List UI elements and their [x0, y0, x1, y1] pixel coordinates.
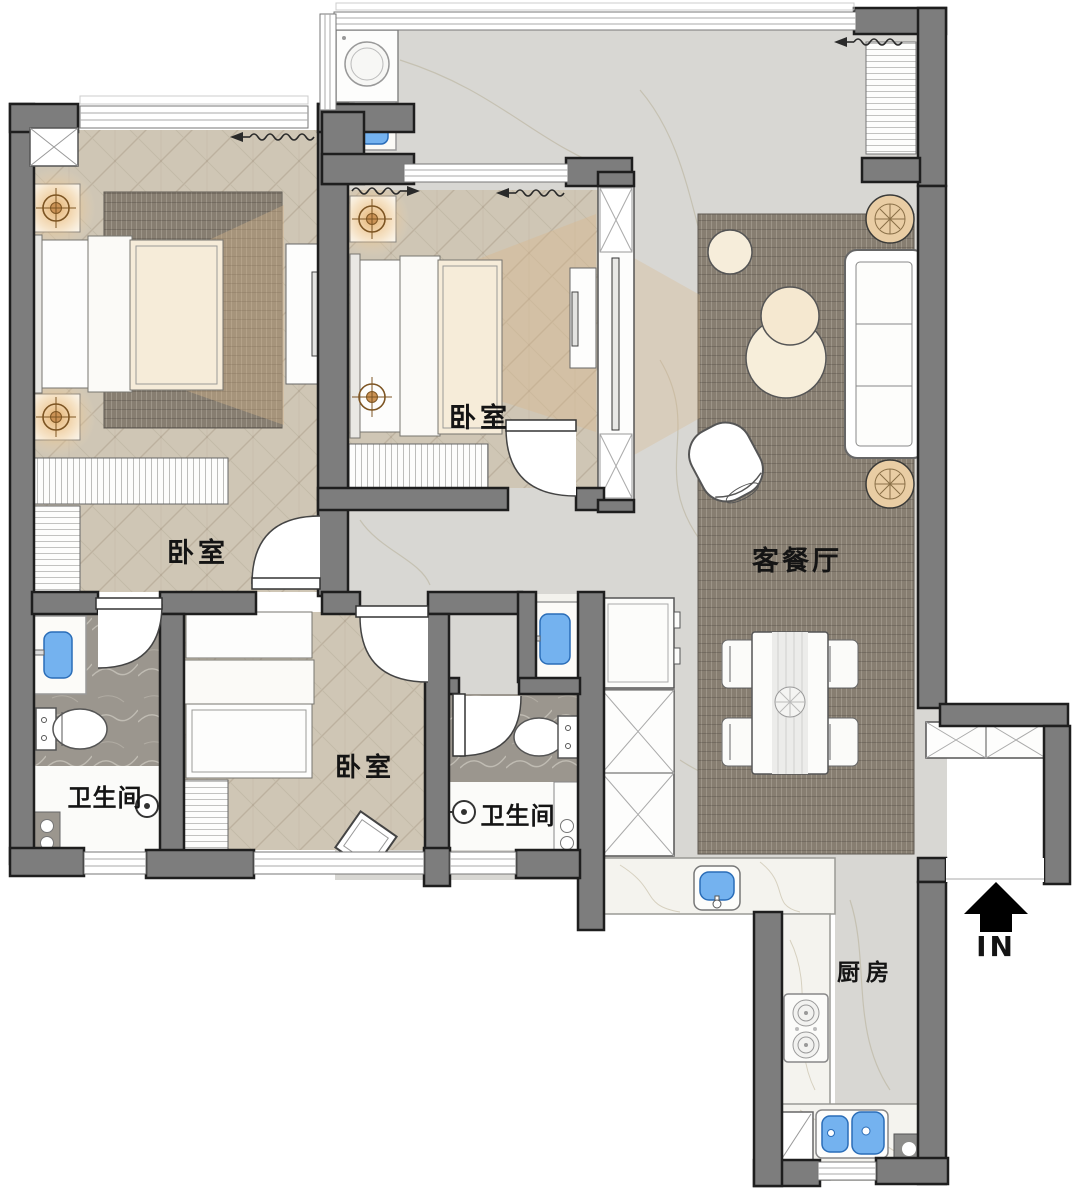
structural-columns: [30, 128, 78, 166]
closet-master: [32, 506, 80, 592]
window: [404, 164, 568, 182]
tv-media-wall: [598, 186, 634, 500]
floor-plan-canvas: 卧室 卧室 卧室 客餐厅 卫生间 卫生间 厨房 IN: [0, 0, 1080, 1194]
bedroom-master-label: 卧室: [167, 537, 229, 569]
window: [320, 14, 336, 110]
kitchen-label: 厨房: [837, 959, 895, 986]
toilet-master: [36, 708, 107, 750]
bathroom-master-label: 卫生间: [68, 784, 143, 812]
master-bed: [32, 235, 223, 393]
kitchen-back-door: [779, 1112, 813, 1164]
dresser-tv-master: [286, 244, 320, 384]
window: [80, 96, 308, 128]
window: [450, 852, 516, 874]
toilet-shared: [514, 716, 578, 758]
potted-plant: [866, 195, 914, 243]
vanity-sink-master: [34, 616, 86, 694]
bedroom-middle-label: 卧室: [449, 402, 511, 434]
tv-icon: [572, 292, 578, 346]
entrance-in-label: IN: [976, 930, 1016, 963]
column-x-icon: [30, 128, 78, 166]
floor-plan-svg: 卧室 卧室 卧室 客餐厅 卫生间 卫生间 厨房 IN: [0, 0, 1080, 1194]
window: [818, 1162, 876, 1180]
living-dining-label: 客餐厅: [752, 545, 842, 577]
window-balcony-glass: [334, 3, 856, 30]
drain-box: [34, 812, 60, 852]
entry-arrow-icon: [964, 882, 1028, 932]
bedroom-small-label: 卧室: [335, 752, 395, 783]
dresser-tv-middle: [570, 268, 596, 368]
tv-icon: [612, 258, 619, 430]
drain-box: [554, 782, 580, 854]
shoe-cabinet: [926, 722, 1046, 758]
fridge: [602, 598, 680, 688]
radiator-living: [866, 42, 916, 154]
window: [254, 852, 424, 874]
entry-door-opening: [946, 858, 1044, 882]
storage-cabinet: [602, 690, 674, 856]
washing-machine: [336, 30, 398, 102]
gas-stove-icon: [784, 994, 828, 1062]
radiator-bench-middle: [334, 444, 488, 488]
bathroom-shared-label: 卫生间: [481, 802, 556, 830]
double-sink: [816, 1110, 888, 1158]
sofa: [845, 250, 925, 458]
small-bed: [182, 612, 314, 778]
window: [84, 852, 146, 874]
radiator-bench-master: [32, 458, 228, 504]
potted-plant: [866, 460, 914, 508]
radiator-small-bedroom: [184, 780, 228, 852]
kitchen-sink: [694, 866, 740, 910]
side-table: [708, 230, 752, 274]
